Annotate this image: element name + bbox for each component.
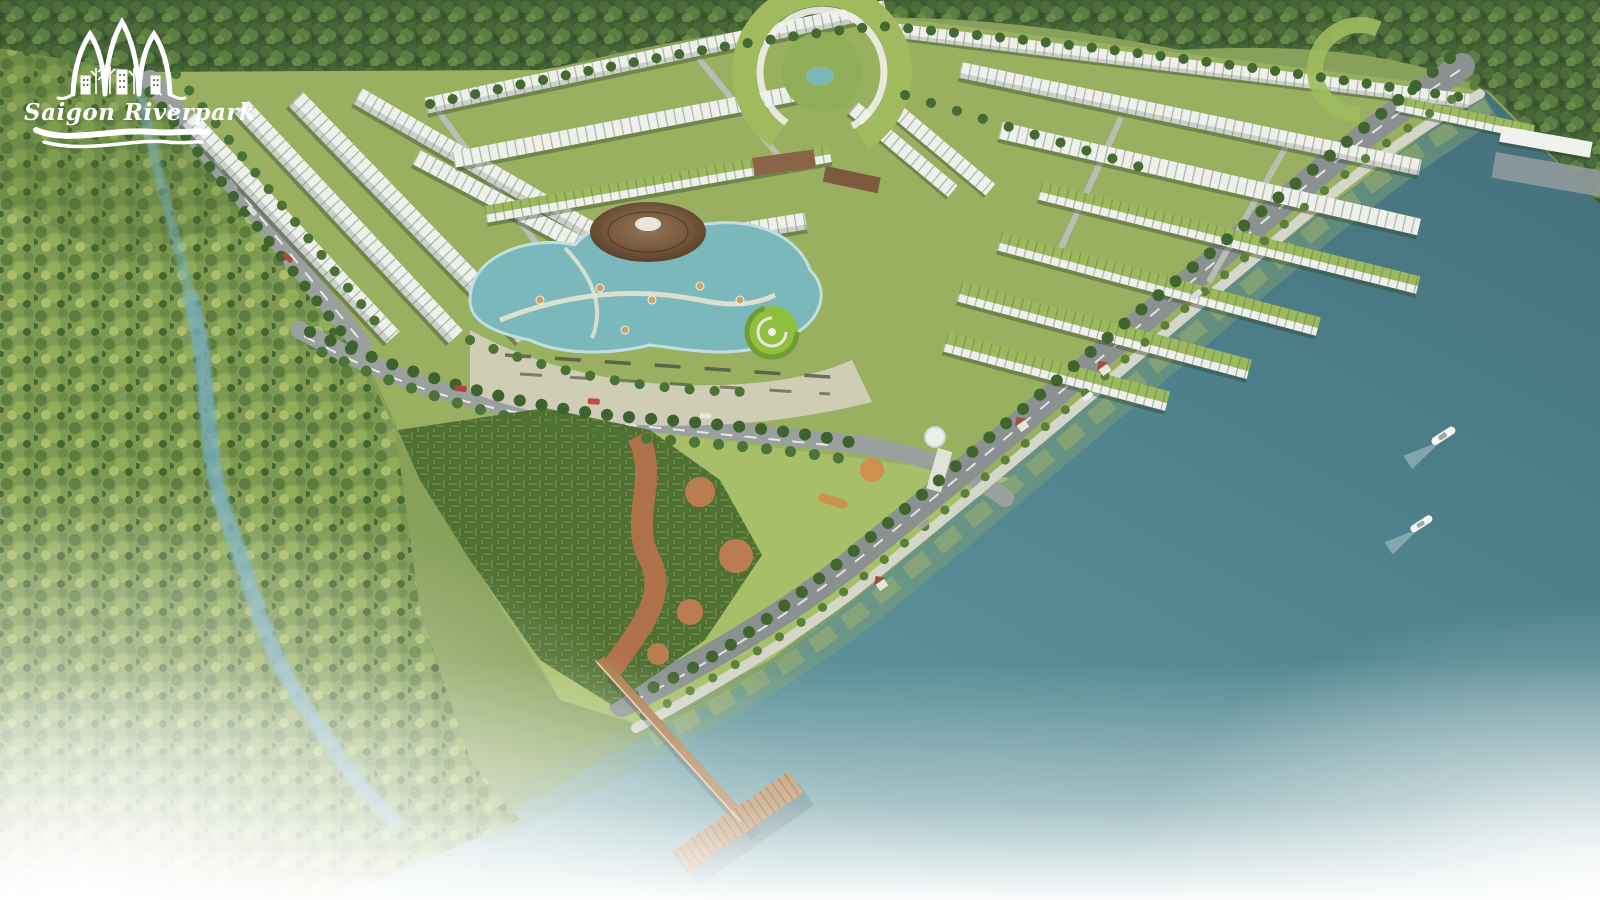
spiral-garden [746,306,798,358]
bottom-right-haze [1000,520,1600,900]
bottom-left-haze [0,420,760,900]
aerial-render-canvas: Saigon Riverpark [0,0,1600,900]
masterplan-scene: Saigon Riverpark [0,0,1600,900]
brand-name: Saigon Riverpark [24,99,255,126]
pavilion-skylight [635,217,661,231]
canopy-dome [925,427,945,447]
